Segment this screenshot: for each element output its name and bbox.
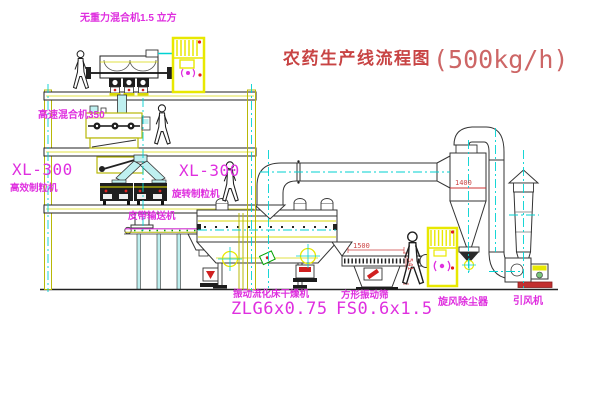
label-belt-conveyor: 皮带输送机	[128, 212, 176, 222]
induced-draft-fan-machine	[505, 258, 552, 288]
dimension-screen-height: 541	[406, 258, 414, 271]
label-granulator-mid-name: 旋转制粒机	[172, 190, 220, 200]
title-text: 农药生产线流程图	[283, 46, 431, 72]
label-granulator-left-model: XL-300	[12, 160, 73, 179]
crosshair-icon	[462, 258, 476, 272]
label-high-speed-mixer: 高速混合机350	[38, 110, 105, 121]
label-gravity-mixer: 无重力混合机1.5 立方	[80, 13, 177, 24]
dimension-screen-length: 1500	[353, 242, 370, 250]
label-granulator-mid-model: XL-300	[179, 161, 240, 180]
title-capacity: (500kg/h)	[433, 46, 568, 73]
flowsheet-canvas: 农药生产线流程图 (500kg/h) 无重力混合机1.5 立方 高速混合机350…	[0, 0, 600, 403]
control-cabinet-lower	[428, 228, 457, 286]
label-granulator-left-name: 高效制粒机	[10, 184, 58, 194]
worker-second-floor	[155, 105, 171, 144]
gravity-free-mixer	[86, 50, 178, 113]
label-screen-model: FS0.6x1.5	[336, 299, 433, 319]
control-cabinet-upper	[173, 38, 204, 92]
label-dryer-model: ZLG6x0.75	[231, 299, 328, 319]
granulator-right-machine	[134, 180, 167, 205]
drawing-title: 农药生产线流程图 (500kg/h)	[283, 46, 568, 73]
label-cyclone: 旋风除尘器	[438, 297, 488, 308]
label-fan: 引风机	[513, 296, 543, 307]
granulator-left-machine	[100, 180, 133, 205]
dimension-cyclone-marking: 1400	[455, 179, 472, 187]
